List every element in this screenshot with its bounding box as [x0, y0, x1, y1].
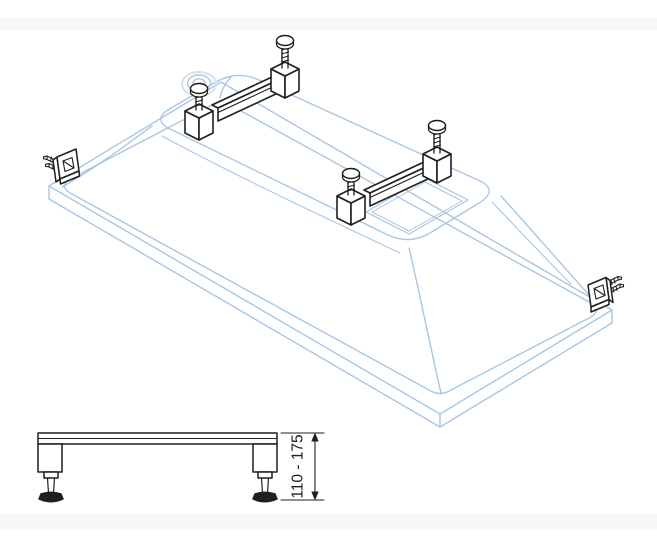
foot-pad [39, 492, 63, 502]
bottom-band [0, 514, 657, 530]
top-band [0, 18, 657, 31]
technical-drawing-page: 110 - 175 [0, 0, 657, 542]
dimension-label: 110 - 175 [290, 434, 307, 498]
leg-block-left [38, 444, 62, 472]
leg-block-right [253, 444, 277, 472]
technical-drawing-canvas: 110 - 175 [0, 0, 657, 542]
foot-pad [253, 492, 277, 502]
